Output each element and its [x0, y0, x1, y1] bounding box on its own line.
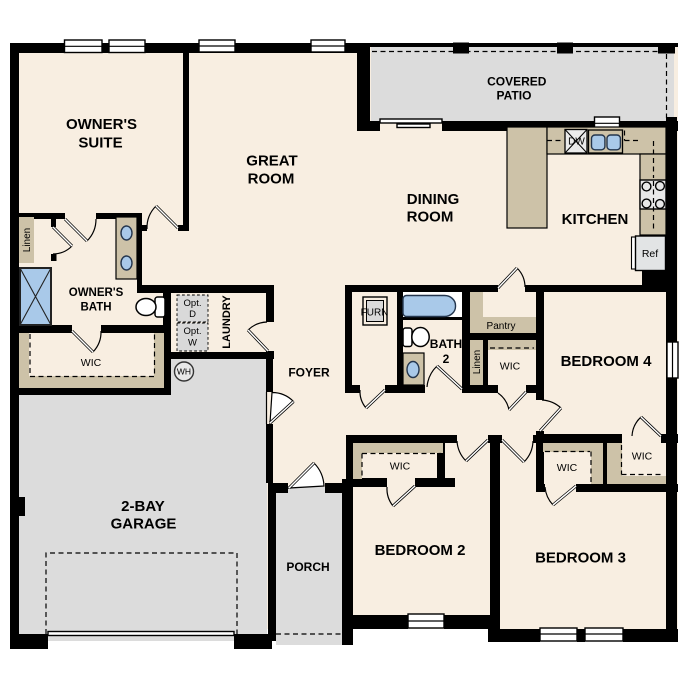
svg-text:COVERED: COVERED: [487, 75, 547, 89]
svg-text:BATH: BATH: [430, 337, 462, 351]
svg-text:PATIO: PATIO: [497, 89, 532, 103]
svg-text:BATH: BATH: [80, 302, 111, 314]
svg-text:DW: DW: [568, 137, 585, 148]
svg-text:OWNER'S: OWNER'S: [66, 116, 137, 133]
svg-text:KITCHEN: KITCHEN: [562, 211, 629, 228]
svg-text:BEDROOM 2: BEDROOM 2: [375, 542, 466, 559]
svg-text:OWNER'S: OWNER'S: [69, 287, 124, 299]
svg-text:GARAGE: GARAGE: [111, 516, 177, 533]
svg-text:Linen: Linen: [22, 228, 33, 252]
svg-text:WIC: WIC: [632, 451, 653, 463]
svg-text:Opt.: Opt.: [184, 326, 202, 337]
svg-text:Linen: Linen: [472, 350, 483, 374]
svg-text:BEDROOM 4: BEDROOM 4: [561, 353, 653, 370]
svg-text:FOYER: FOYER: [288, 366, 330, 380]
svg-text:WH: WH: [177, 367, 191, 377]
svg-text:WIC: WIC: [81, 357, 102, 369]
svg-text:LAUNDRY: LAUNDRY: [221, 295, 233, 349]
svg-text:2: 2: [443, 352, 450, 366]
svg-text:ROOM: ROOM: [248, 171, 295, 188]
svg-text:SUITE: SUITE: [78, 135, 122, 152]
svg-text:GREAT: GREAT: [246, 153, 297, 170]
svg-text:WIC: WIC: [390, 461, 411, 473]
svg-text:FURN: FURN: [361, 308, 389, 319]
svg-text:BEDROOM 3: BEDROOM 3: [535, 550, 626, 567]
svg-text:D: D: [189, 309, 196, 320]
svg-text:WIC: WIC: [557, 462, 578, 474]
svg-text:W: W: [188, 338, 197, 349]
svg-text:ROOM: ROOM: [407, 209, 454, 226]
svg-text:Opt.: Opt.: [184, 298, 202, 309]
svg-text:2-BAY: 2-BAY: [121, 498, 165, 515]
svg-text:WIC: WIC: [500, 361, 521, 373]
svg-text:Ref: Ref: [642, 248, 658, 260]
svg-text:PORCH: PORCH: [286, 560, 329, 574]
svg-text:Pantry: Pantry: [487, 321, 516, 332]
svg-text:DINING: DINING: [407, 191, 460, 208]
